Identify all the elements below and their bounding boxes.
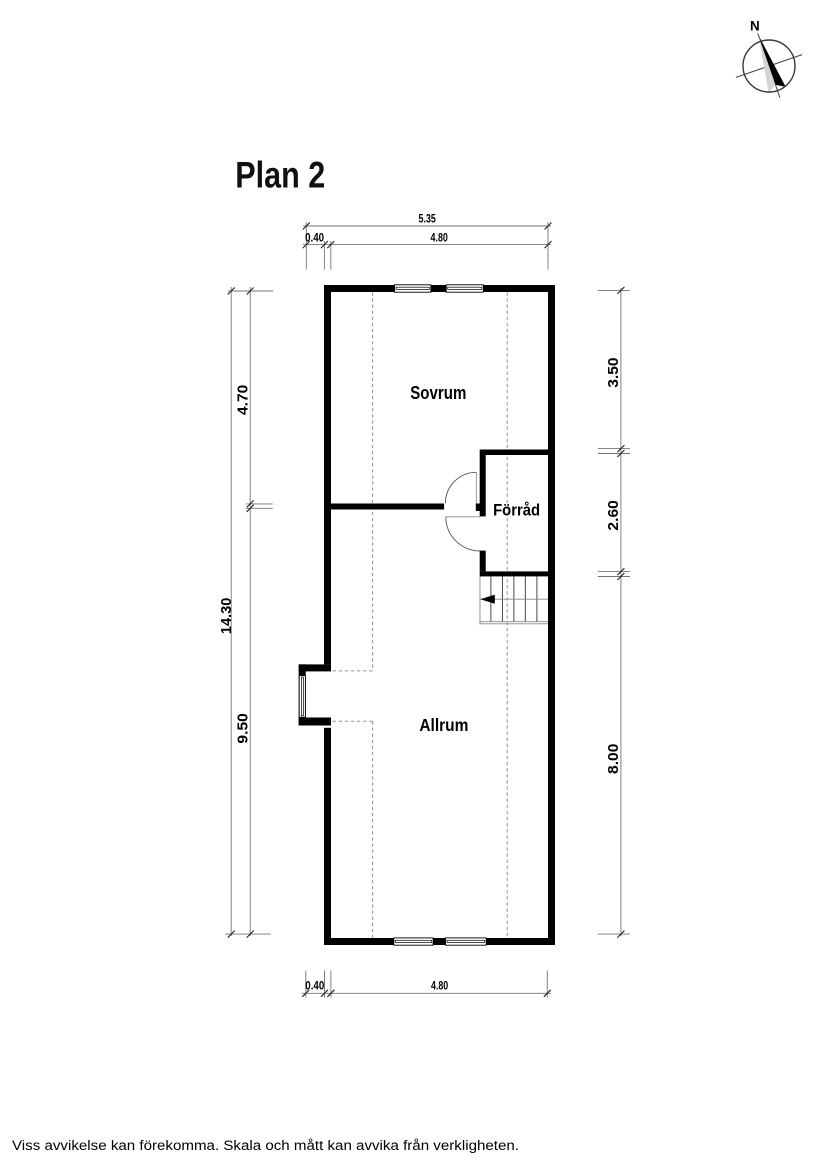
svg-text:4.80: 4.80	[431, 233, 448, 245]
svg-text:3.50: 3.50	[606, 357, 622, 387]
svg-text:N: N	[750, 18, 760, 33]
svg-text:0.40: 0.40	[305, 233, 324, 245]
svg-text:2.60: 2.60	[606, 500, 622, 530]
svg-text:Viss avvikelse kan förekomma.: Viss avvikelse kan förekomma. Skala och …	[12, 1138, 519, 1153]
svg-text:5.35: 5.35	[419, 214, 437, 226]
svg-text:8.00: 8.00	[606, 744, 622, 774]
svg-text:Plan 2: Plan 2	[235, 155, 325, 196]
svg-text:14.30: 14.30	[219, 598, 235, 635]
svg-text:4.70: 4.70	[236, 385, 252, 415]
svg-text:Förråd: Förråd	[493, 500, 540, 519]
svg-text:4.80: 4.80	[431, 981, 448, 993]
svg-text:Sovrum: Sovrum	[410, 382, 466, 403]
svg-text:0.40: 0.40	[305, 981, 324, 993]
svg-text:Allrum: Allrum	[419, 715, 468, 735]
svg-text:9.50: 9.50	[236, 713, 252, 743]
